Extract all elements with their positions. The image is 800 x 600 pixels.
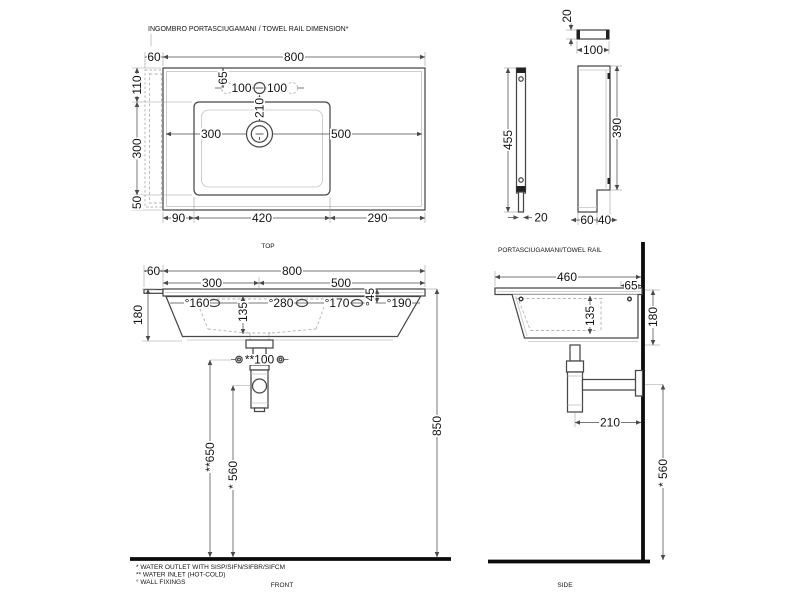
- waste-pipe-horizontal: [583, 380, 637, 391]
- footnote-water-outlet: * WATER OUTLET WITH SISP/SIFN/SIFBR/SIFC…: [136, 564, 285, 571]
- dim-bowl-depth: 300: [130, 138, 144, 158]
- faucet-hole-optional-right: [287, 83, 298, 94]
- top-view: 60 800 110 300 50 65 100 100 210 300 500…: [130, 50, 425, 250]
- dim-plate-height: 390: [610, 118, 624, 138]
- dim-side-mid-depth: 135: [583, 306, 597, 326]
- dim-split-right: 500: [331, 127, 351, 141]
- dim-bar-height: 455: [501, 130, 515, 150]
- dim-overall-width: 800: [284, 50, 304, 64]
- dim-fixing-1: °160: [185, 296, 210, 310]
- dim-margin-right: 290: [367, 211, 387, 225]
- dim-fixing-vertical: °45: [363, 288, 377, 306]
- side-view-label: SIDE: [557, 582, 573, 589]
- dim-foot-left: 60: [580, 213, 594, 227]
- dim-inlet-spacing: **100: [245, 353, 275, 367]
- side-view: 460 65 135 180 210 * 560 SIDE: [488, 242, 670, 589]
- water-inlet-left: [236, 356, 242, 362]
- footnote-water-inlet: ** WATER INLET (HOT-COLD): [136, 572, 225, 579]
- dim-front-split-right: 500: [331, 276, 351, 290]
- drawing-title: INGOMBRO PORTASCIUGAMANI / TOWEL RAIL DI…: [148, 26, 349, 33]
- basin-body-side: [512, 295, 638, 339]
- wall-flange: [636, 371, 643, 397]
- dim-front-depth: 50: [130, 196, 144, 210]
- rail-hook-top: [608, 73, 611, 79]
- dim-front-height: 180: [131, 305, 145, 325]
- dim-side-outlet-height: * 560: [656, 459, 670, 487]
- washbasin-dimension-drawing: INGOMBRO PORTASCIUGAMANI / TOWEL RAIL DI…: [0, 0, 800, 600]
- rail-bar-side: [517, 68, 526, 193]
- dim-front-mid-depth: 135: [236, 302, 250, 322]
- dim-front-width: 800: [282, 264, 302, 278]
- rail-bar-band: [517, 186, 526, 192]
- front-view-label: FRONT: [271, 582, 293, 589]
- rail-bar-top-cap: [517, 68, 526, 73]
- tail-pipe-side: [570, 345, 580, 361]
- dim-bracket-width: 100: [583, 43, 603, 57]
- dim-foot-right: 40: [598, 213, 612, 227]
- dim-front-split-left: 300: [202, 276, 222, 290]
- dim-rear-depth: 110: [130, 75, 144, 94]
- dim-wall-offset: 65: [624, 279, 638, 293]
- rail-plate-front: [578, 66, 610, 212]
- water-inlet-right: [277, 356, 283, 362]
- drain-tailpiece: [246, 340, 273, 348]
- technical-drawing-sheet: INGOMBRO PORTASCIUGAMANI / TOWEL RAIL DI…: [0, 0, 800, 600]
- dim-inlet-height: **650: [203, 442, 217, 472]
- siphon-body-side: [568, 372, 583, 412]
- dim-front-rail-width: 60: [147, 264, 161, 278]
- rail-bar-tip: [519, 192, 524, 212]
- dim-total-height: 850: [430, 416, 444, 436]
- dim-bowl-width: 420: [252, 211, 272, 225]
- rail-hook-bottom: [608, 178, 611, 184]
- dim-drain-offset: 210: [253, 98, 267, 118]
- dim-faucet-right: 100: [267, 81, 287, 95]
- top-view-label: TOP: [261, 243, 274, 250]
- fixing-dot-rear: [628, 297, 632, 301]
- dim-fixing-4: °190: [387, 296, 412, 310]
- towel-rail-stub: [144, 290, 163, 294]
- towel-rail-view: 20 100 455 20 390 60 40 PORTASCIUGAMANI/…: [498, 9, 624, 255]
- siphon-cap: [255, 408, 265, 412]
- rail-view-label: PORTASCIUGAMANI/TOWEL RAIL: [498, 247, 602, 254]
- dim-split-left: 300: [201, 127, 221, 141]
- dim-trap-to-wall: 210: [600, 416, 620, 430]
- dim-bracket-depth: 20: [560, 9, 574, 23]
- rail-bracket-top: [577, 30, 609, 39]
- footnote-wall-fixings: ° WALL FIXINGS: [136, 578, 186, 586]
- dim-side-depth: 460: [557, 270, 577, 284]
- dim-bar-width: 20: [534, 211, 548, 225]
- rail-bracket-cap-left: [577, 30, 580, 39]
- dim-faucet-offset: 65: [216, 71, 230, 85]
- dim-margin-left: 90: [172, 211, 186, 225]
- dim-fixing-3: °170: [325, 296, 350, 310]
- fixing-dot-front: [519, 297, 523, 301]
- front-view: 60 800 300 500 °160 °280 °170 °190 °45 1…: [130, 264, 451, 589]
- dim-fixing-2: °280: [269, 296, 294, 310]
- siphon-nut-side: [567, 361, 584, 372]
- dim-side-height: 180: [646, 307, 660, 327]
- footnotes: * WATER OUTLET WITH SISP/SIFN/SIFBR/SIFC…: [136, 564, 285, 586]
- dim-faucet-left: 100: [231, 81, 251, 95]
- dim-outlet-height: * 560: [226, 461, 240, 489]
- siphon-front: [246, 340, 273, 412]
- siphon-side: [567, 345, 643, 412]
- rail-bracket-cap-right: [606, 30, 609, 39]
- dim-rail-width: 60: [147, 50, 161, 64]
